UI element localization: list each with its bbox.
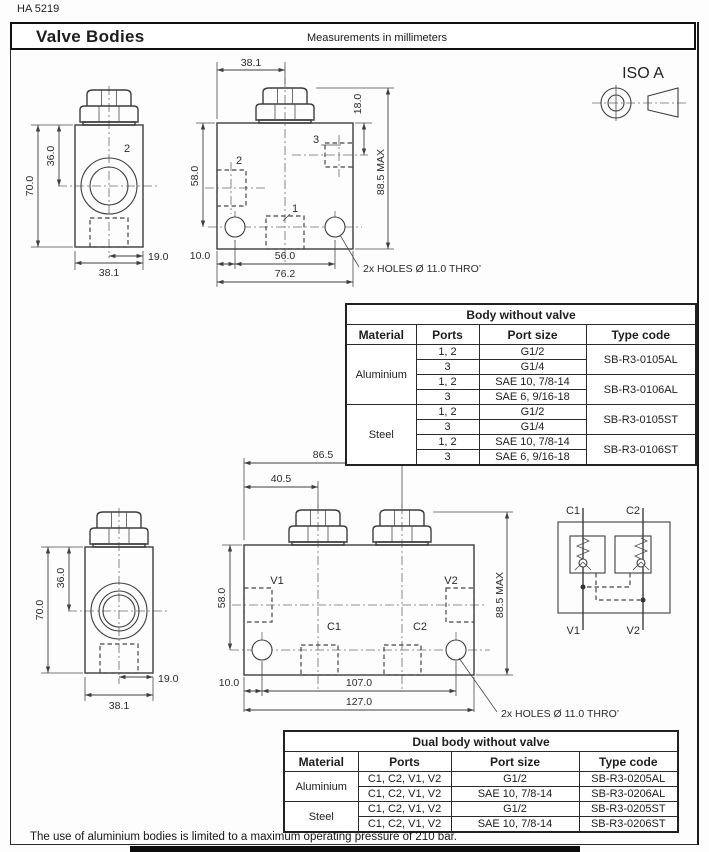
col-header: Port size	[451, 752, 579, 772]
table-row: Aluminium C1, C2, V1, V2 G1/2 SB-R3-0205…	[284, 772, 678, 787]
ports-cell: 3	[416, 390, 479, 405]
col-header: Material	[284, 752, 358, 772]
size-cell: SAE 10, 7/8-14	[451, 817, 579, 833]
ports-cell: 3	[416, 420, 479, 435]
check-ball	[637, 559, 645, 567]
port-label: C2	[413, 621, 427, 633]
dim-label: 36.0	[55, 568, 67, 589]
port-label: C2	[626, 505, 640, 517]
ports-cell: 1, 2	[416, 375, 479, 390]
port-label: V1	[567, 625, 580, 637]
dim-label: 19.0	[158, 673, 179, 685]
table-row: Steel C1, C2, V1, V2 G1/2 SB-R3-0205ST	[284, 802, 678, 817]
size-cell: G1/2	[479, 345, 586, 360]
dim-label: 76.2	[275, 268, 296, 280]
size-cell: G1/2	[479, 405, 586, 420]
code-cell: SB-R3-0206ST	[579, 817, 678, 833]
dual-body-side-view: 70.0 36.0 38.1 19.0	[34, 508, 179, 712]
dim-label: 38.1	[241, 57, 262, 69]
spring-symbol	[635, 538, 647, 559]
table-title: Body without valve	[346, 304, 696, 325]
col-header: Port size	[479, 325, 586, 345]
port-label: C1	[566, 505, 580, 517]
dim-label: 58.0	[216, 588, 228, 609]
table-row: Steel 1, 2 G1/2 SB-R3-0105ST	[346, 405, 696, 420]
dim-label: 70.0	[24, 176, 36, 197]
ports-cell: 3	[416, 450, 479, 466]
ports-cell: 1, 2	[416, 435, 479, 450]
table-title: Dual body without valve	[284, 731, 678, 752]
col-header: Type code	[586, 325, 696, 345]
port-label: 2	[236, 155, 242, 167]
holes-callout: 2x HOLES Ø 11.0 THRO’	[363, 263, 481, 275]
col-header: Ports	[358, 752, 451, 772]
size-cell: G1/2	[451, 772, 579, 787]
dim-label: 38.1	[109, 700, 130, 712]
port-label: V1	[270, 575, 283, 587]
material-cell: Steel	[346, 405, 416, 466]
holes-callout: 2x HOLES Ø 11.0 THRO’	[501, 708, 619, 720]
port-label: 1	[292, 203, 298, 215]
hydraulic-schematic: C1 C2 V1 V2	[558, 505, 670, 637]
pressure-footnote: The use of aluminium bodies is limited t…	[30, 831, 457, 843]
dim-label: 86.5	[313, 449, 334, 461]
ports-cell: C1, C2, V1, V2	[358, 802, 451, 817]
table-row: Aluminium 1, 2 G1/2 SB-R3-0105AL	[346, 345, 696, 360]
single-body-front-view: 2 3 1 38.1 18.0 88.5 MAX 58.0 10.0 56.0 …	[189, 57, 481, 287]
dim-label: 10.0	[219, 677, 240, 689]
footer-black-bar	[130, 846, 580, 852]
material-cell: Steel	[284, 802, 358, 833]
ports-cell: C1, C2, V1, V2	[358, 772, 451, 787]
code-cell: SB-R3-0205ST	[579, 802, 678, 817]
dim-label: 88.5 MAX	[375, 149, 387, 195]
dim-label: 107.0	[346, 677, 372, 689]
col-header: Type code	[579, 752, 678, 772]
dim-label: 19.0	[148, 251, 169, 263]
code-cell: SB-R3-0105AL	[586, 345, 696, 375]
dim-label: 127.0	[346, 696, 372, 708]
single-body-table: Body without valve Material Ports Port s…	[345, 303, 697, 466]
port-label: 2	[124, 143, 130, 155]
dim-label: 70.0	[34, 600, 46, 621]
code-cell: SB-R3-0105ST	[586, 405, 696, 435]
iso-label: ISO A	[622, 65, 664, 82]
size-cell: SAE 10, 7/8-14	[479, 435, 586, 450]
port-label: 3	[313, 134, 319, 146]
size-cell: SAE 10, 7/8-14	[479, 375, 586, 390]
dim-label: 10.0	[190, 250, 211, 262]
size-cell: SAE 6, 9/16-18	[479, 390, 586, 405]
size-cell: G1/4	[479, 360, 586, 375]
code-cell: SB-R3-0106ST	[586, 435, 696, 466]
dual-body-front-view: V1 V2 C1 C2 86.5 40.5 58.0 88.5 MAX 10.0…	[216, 449, 619, 720]
port-label: C1	[327, 621, 341, 633]
col-header: Ports	[416, 325, 479, 345]
datasheet-page: HA 5219 Valve Bodies Measurements in mil…	[0, 0, 709, 852]
iso-projection-symbol: ISO A	[592, 65, 688, 121]
code-cell: SB-R3-0205AL	[579, 772, 678, 787]
dim-label: 38.1	[99, 267, 120, 279]
dual-body-table: Dual body without valve Material Ports P…	[283, 730, 679, 833]
ports-cell: 3	[416, 360, 479, 375]
code-cell: SB-R3-0206AL	[579, 787, 678, 802]
size-cell: SAE 6, 9/16-18	[479, 450, 586, 466]
dim-label: 36.0	[45, 146, 57, 167]
check-ball	[579, 559, 587, 567]
size-cell: G1/2	[451, 802, 579, 817]
material-cell: Aluminium	[346, 345, 416, 405]
dim-label: 18.0	[352, 94, 364, 115]
single-body-side-view: 2 70.0 36.0 38.1 19.0	[24, 86, 169, 279]
ports-cell: C1, C2, V1, V2	[358, 817, 451, 833]
port-label: V2	[444, 575, 457, 587]
dim-label: 40.5	[271, 473, 292, 485]
size-cell: SAE 10, 7/8-14	[451, 787, 579, 802]
ports-cell: 1, 2	[416, 345, 479, 360]
col-header: Material	[346, 325, 416, 345]
size-cell: G1/4	[479, 420, 586, 435]
dim-label: 58.0	[189, 166, 201, 187]
material-cell: Aluminium	[284, 772, 358, 802]
ports-cell: C1, C2, V1, V2	[358, 787, 451, 802]
ports-cell: 1, 2	[416, 405, 479, 420]
dim-label: 88.5 MAX	[494, 572, 506, 618]
dim-label: 56.0	[275, 250, 296, 262]
code-cell: SB-R3-0106AL	[586, 375, 696, 405]
port-label: V2	[627, 625, 640, 637]
